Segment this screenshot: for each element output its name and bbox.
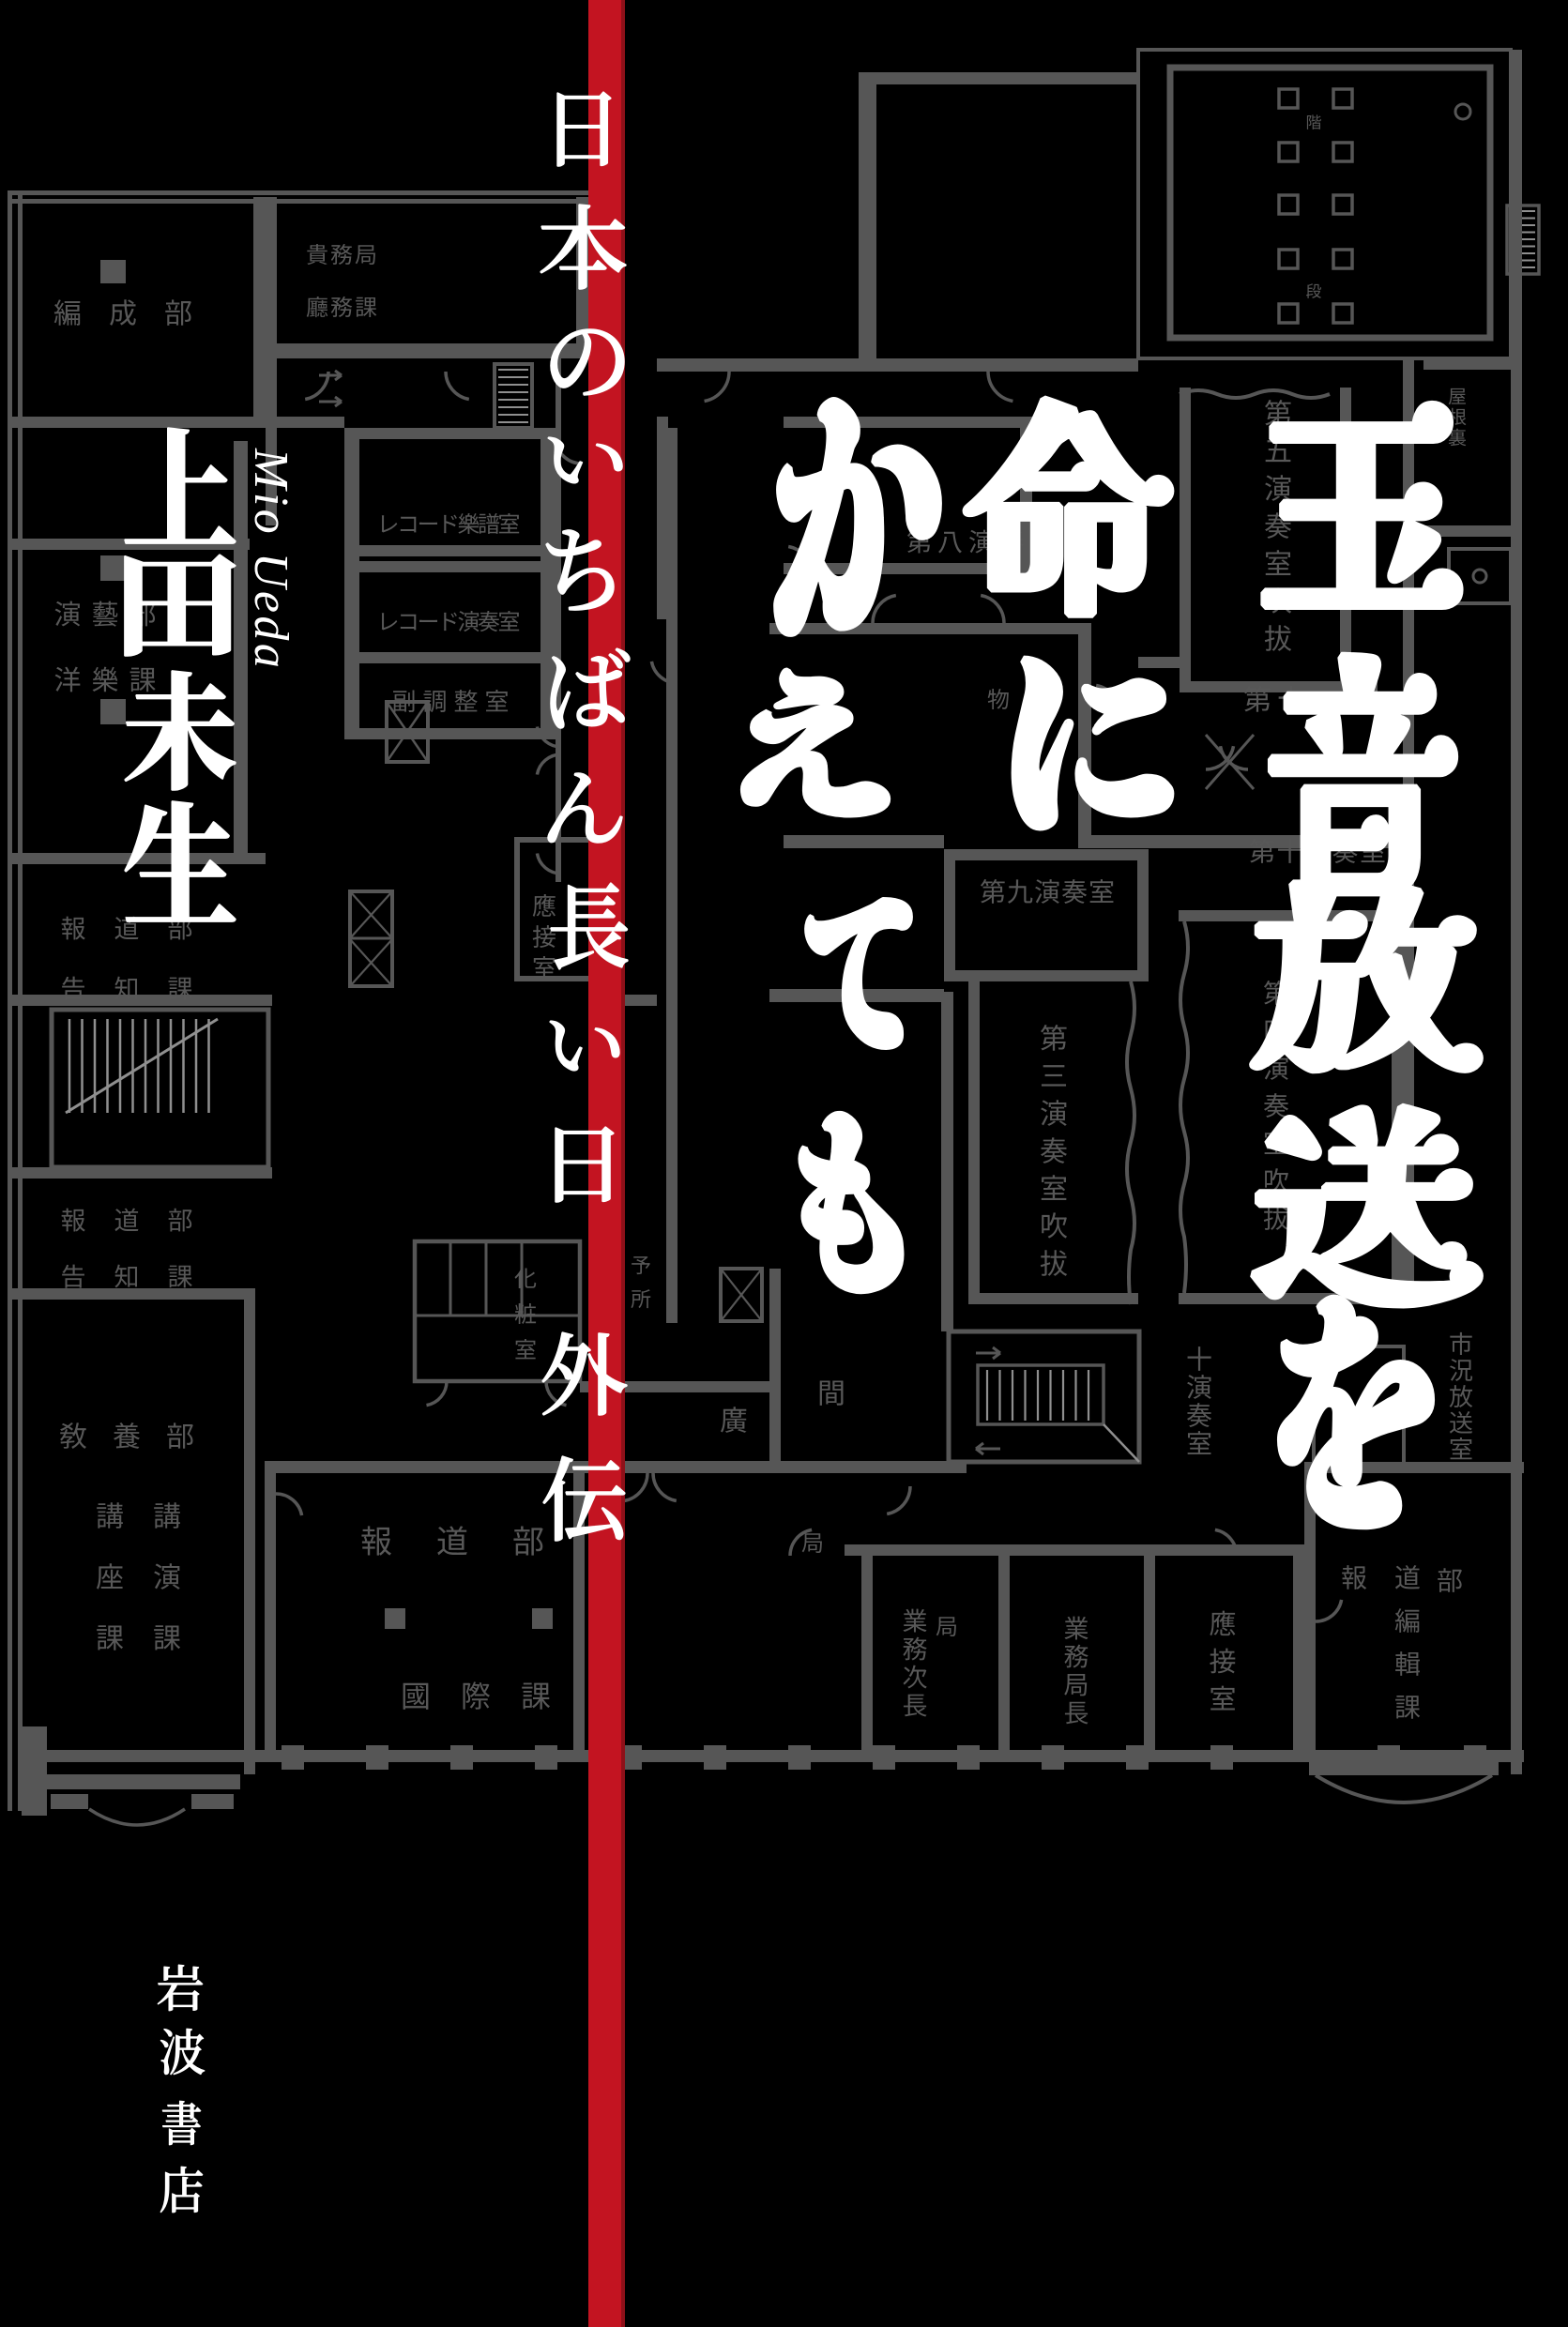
svg-text:Mio Ueda: Mio Ueda	[244, 448, 297, 671]
